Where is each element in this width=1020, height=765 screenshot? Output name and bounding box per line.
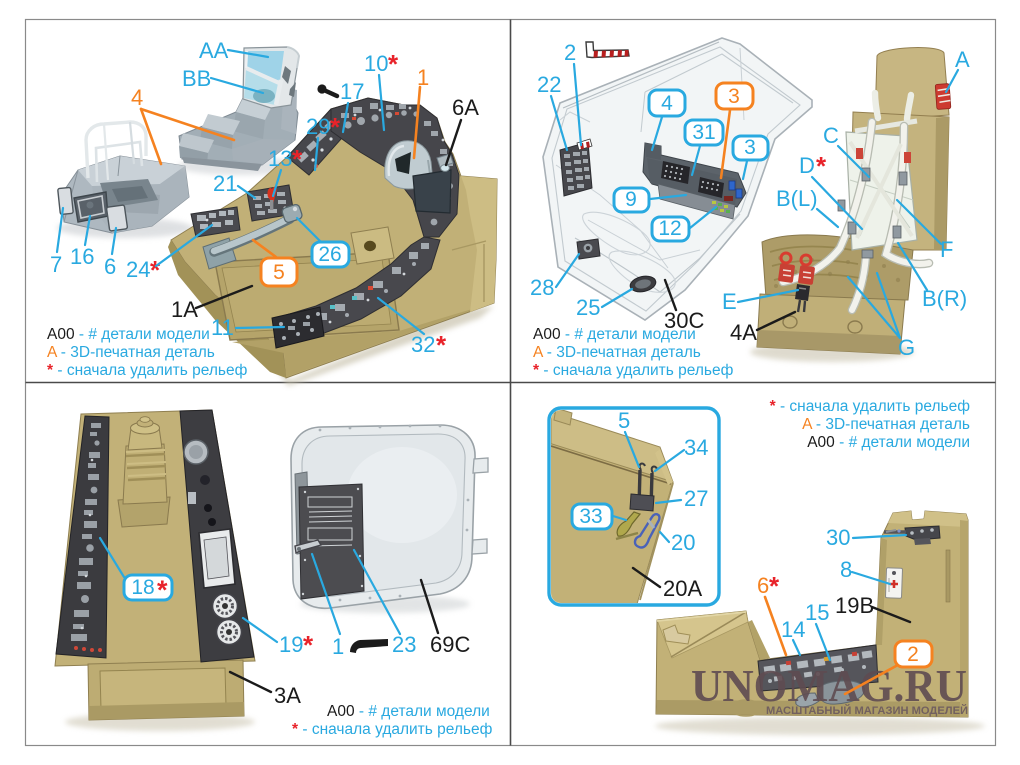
svg-text:F: F	[940, 237, 953, 262]
svg-text:6: 6	[757, 573, 769, 598]
svg-text:6A: 6A	[452, 95, 479, 120]
svg-text:A: A	[955, 47, 970, 72]
svg-text:2: 2	[564, 40, 576, 65]
svg-text:20: 20	[671, 530, 695, 555]
svg-text:A - 3D-печатная деталь: A - 3D-печатная деталь	[802, 416, 970, 433]
svg-text:* - сначала удалить рельеф: * - сначала удалить рельеф	[533, 362, 734, 379]
svg-text:20A: 20A	[663, 576, 702, 601]
svg-text:5: 5	[618, 408, 630, 433]
svg-text:17: 17	[340, 79, 364, 104]
svg-text:31: 31	[692, 121, 715, 144]
svg-text:29: 29	[306, 114, 330, 139]
svg-text:*: *	[388, 49, 399, 79]
svg-text:A - 3D-печатная деталь: A - 3D-печатная деталь	[47, 344, 215, 361]
svg-text:*: *	[157, 575, 168, 605]
svg-text:7: 7	[50, 252, 62, 277]
svg-text:13: 13	[268, 146, 292, 171]
svg-text:C: C	[823, 123, 839, 148]
svg-text:AA: AA	[199, 38, 229, 63]
svg-text:*: *	[292, 144, 303, 174]
svg-text:34: 34	[684, 435, 708, 460]
svg-text:* - сначала удалить рельеф: * - сначала удалить рельеф	[47, 362, 248, 379]
svg-text:26: 26	[318, 243, 341, 266]
svg-text:4: 4	[661, 92, 673, 115]
svg-text:*: *	[330, 112, 341, 142]
svg-text:19: 19	[279, 632, 303, 657]
svg-text:21: 21	[213, 171, 237, 196]
svg-text:16: 16	[70, 244, 94, 269]
svg-text:E: E	[722, 289, 737, 314]
svg-text:* - сначала удалить рельеф: * - сначала удалить рельеф	[770, 398, 971, 415]
svg-text:B(L): B(L)	[776, 186, 818, 211]
svg-text:*: *	[769, 571, 780, 601]
svg-text:69C: 69C	[430, 632, 470, 657]
svg-text:18: 18	[131, 576, 154, 599]
svg-text:32: 32	[411, 332, 435, 357]
svg-text:1: 1	[332, 634, 344, 659]
svg-text:24: 24	[126, 257, 150, 282]
svg-text:*: *	[816, 151, 827, 181]
svg-text:*: *	[303, 630, 314, 660]
svg-text:27: 27	[684, 486, 708, 511]
svg-text:23: 23	[392, 632, 416, 657]
svg-text:22: 22	[537, 72, 561, 97]
svg-text:A00 - # детали модели: A00 - # детали модели	[807, 434, 970, 451]
svg-text:A00 - # детали модели: A00 - # детали модели	[47, 326, 210, 343]
svg-text:10: 10	[364, 51, 388, 76]
svg-text:28: 28	[530, 275, 554, 300]
svg-text:3: 3	[728, 85, 740, 108]
svg-text:A00 - # детали модели: A00 - # детали модели	[533, 326, 696, 343]
svg-text:4A: 4A	[730, 320, 757, 345]
svg-text:*: *	[436, 330, 447, 360]
svg-text:5: 5	[273, 261, 285, 284]
svg-text:D: D	[799, 153, 815, 178]
svg-text:2: 2	[907, 643, 919, 666]
svg-text:8: 8	[840, 557, 852, 582]
svg-text:33: 33	[579, 505, 602, 528]
svg-text:МАСШТАБНЫЙ МАГАЗИН МОДЕЛЕЙ: МАСШТАБНЫЙ МАГАЗИН МОДЕЛЕЙ	[766, 704, 968, 717]
svg-text:6: 6	[104, 254, 116, 279]
svg-text:A - 3D-печатная деталь: A - 3D-печатная деталь	[533, 344, 701, 361]
svg-text:9: 9	[625, 188, 637, 211]
svg-text:12: 12	[658, 217, 681, 240]
svg-text:11: 11	[211, 315, 234, 340]
svg-text:* - сначала удалить рельеф: * - сначала удалить рельеф	[292, 721, 493, 738]
svg-text:19B: 19B	[835, 593, 874, 618]
svg-text:30: 30	[826, 525, 850, 550]
svg-text:1A: 1A	[171, 297, 198, 322]
svg-text:*: *	[150, 255, 161, 285]
svg-text:14: 14	[781, 617, 805, 642]
svg-text:BB: BB	[182, 66, 211, 91]
svg-text:A00 - # детали модели: A00 - # детали модели	[327, 703, 490, 720]
svg-text:B(R): B(R)	[922, 286, 967, 311]
svg-text:25: 25	[576, 295, 600, 320]
svg-text:3A: 3A	[274, 683, 301, 708]
svg-text:4: 4	[131, 85, 143, 110]
svg-text:15: 15	[805, 600, 829, 625]
svg-text:1: 1	[417, 65, 429, 90]
svg-text:3: 3	[744, 136, 756, 159]
